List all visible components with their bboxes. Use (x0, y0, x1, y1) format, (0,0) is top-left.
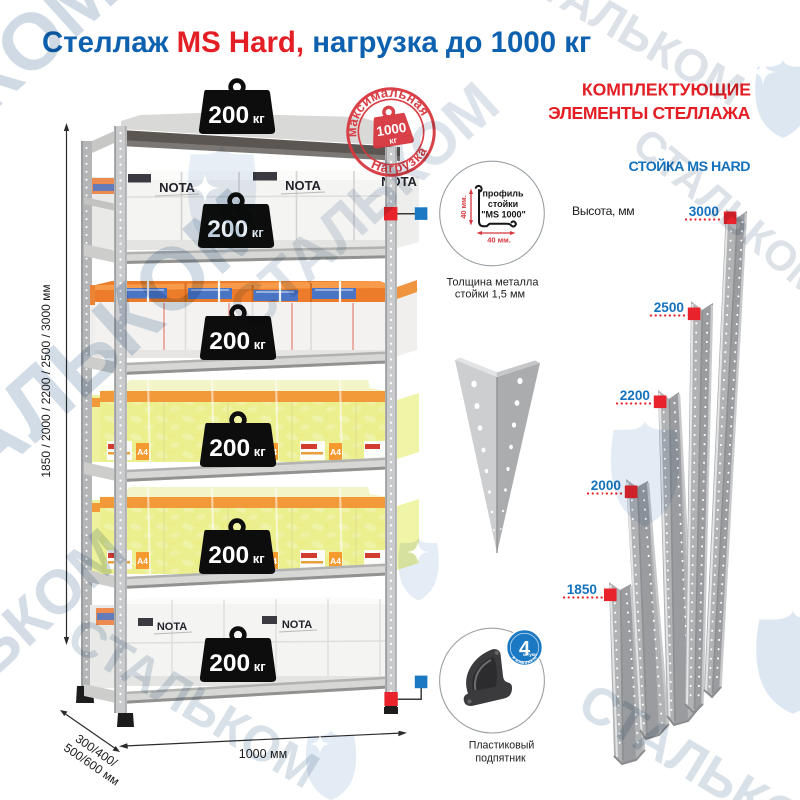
svg-text:NOTA: NOTA (285, 178, 321, 193)
svg-text:стойки: стойки (488, 199, 518, 209)
svg-text:A4: A4 (137, 447, 148, 457)
svg-text:2200: 2200 (620, 388, 650, 403)
svg-text:1850: 1850 (567, 582, 597, 597)
svg-text:A4: A4 (330, 556, 341, 566)
svg-text:"MS 1000": "MS 1000" (481, 210, 526, 220)
svg-text:подпятник: подпятник (475, 753, 526, 765)
svg-text:Пластиковый: Пластиковый (469, 740, 535, 752)
svg-text:NOTA: NOTA (157, 621, 187, 633)
svg-text:стойки 1,5 мм: стойки 1,5 мм (455, 289, 525, 301)
svg-text:A4: A4 (330, 447, 341, 457)
svg-text:Толщина металла: Толщина металла (447, 277, 540, 289)
svg-text:профиль: профиль (482, 189, 524, 199)
svg-text:40 мм.: 40 мм. (459, 195, 468, 219)
svg-text:A4: A4 (137, 556, 148, 566)
svg-text:40 мм.: 40 мм. (487, 236, 511, 245)
svg-text:Высота, мм: Высота, мм (572, 204, 634, 218)
svg-text:NOTA: NOTA (282, 619, 312, 631)
svg-text:Стеллаж MS Hard, нагрузка до 1: Стеллаж MS Hard, нагрузка до 1000 кг (42, 26, 591, 59)
svg-text:2500: 2500 (654, 300, 684, 315)
